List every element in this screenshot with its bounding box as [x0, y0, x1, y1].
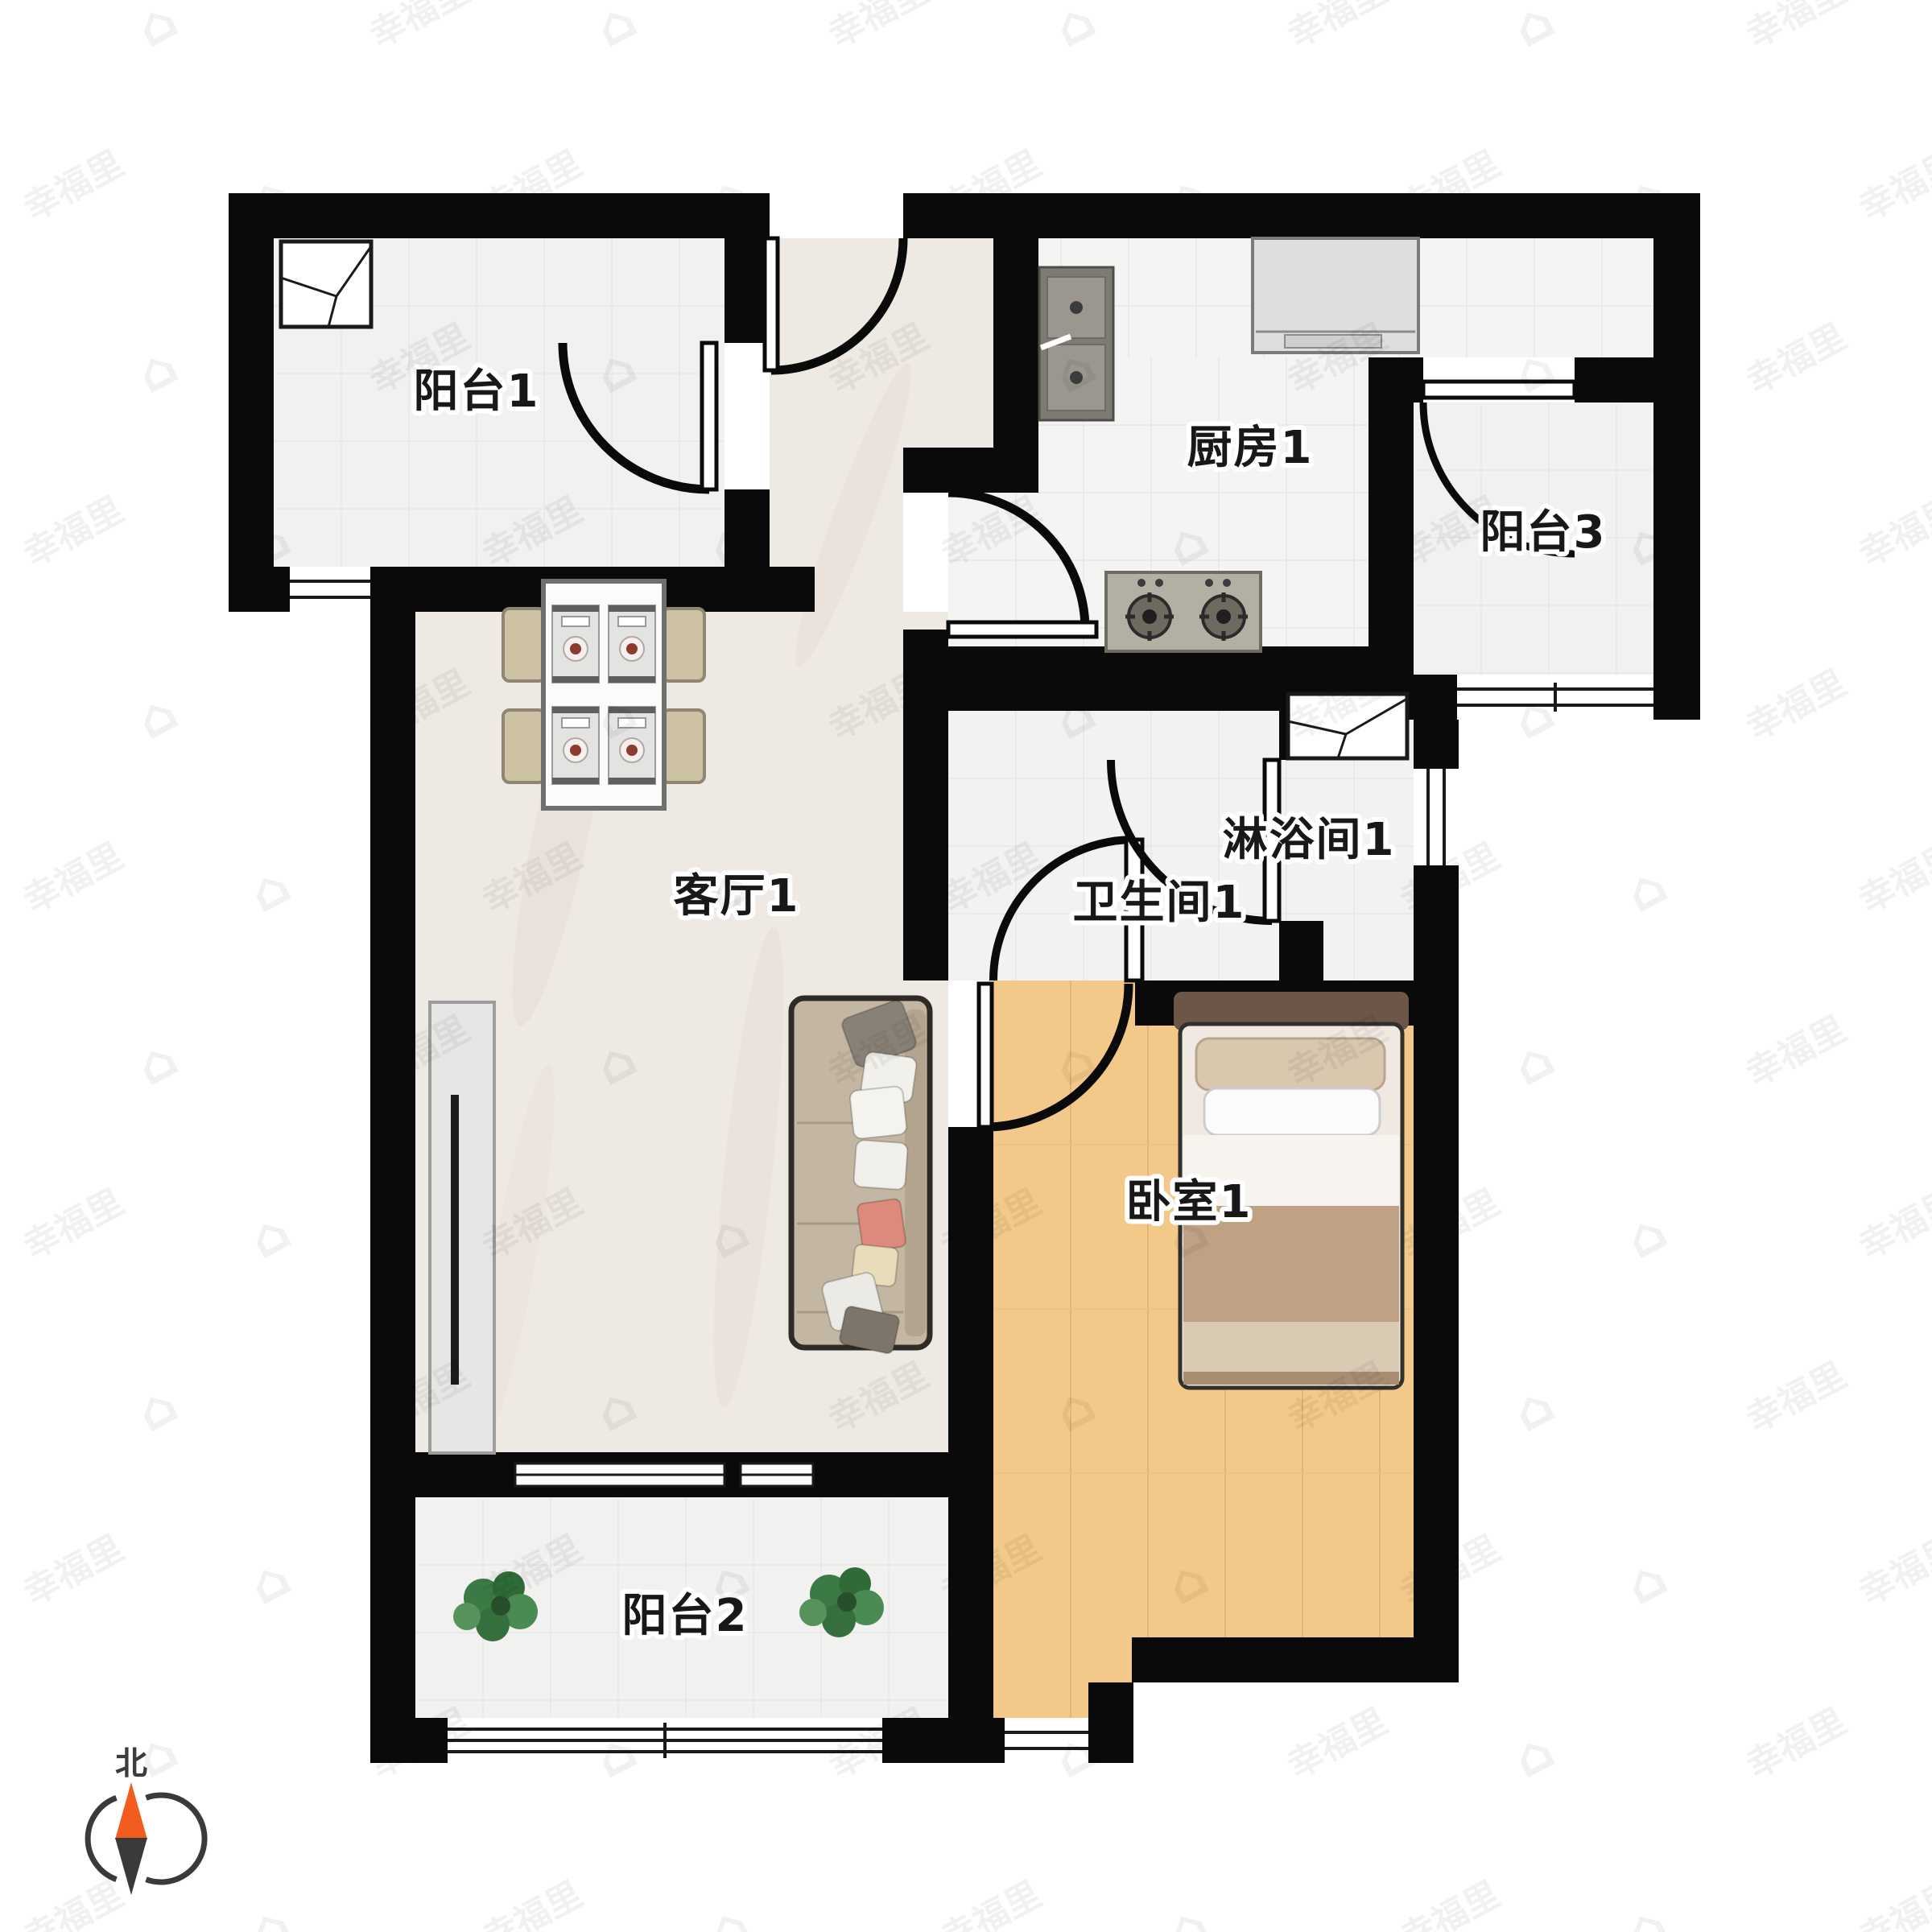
watermark-house-icon: ⌂: [1616, 1547, 1677, 1617]
watermark-house-icon: ⌂: [1616, 855, 1677, 925]
dining-chair: [503, 609, 545, 681]
window-living-balcony2-a: [515, 1463, 724, 1486]
window-balcony2-bottom: [448, 1718, 882, 1763]
watermark-text: 幸福里: [1852, 1528, 1932, 1614]
watermark-text: 幸福里: [822, 0, 935, 56]
watermark-text: 幸福里: [17, 1874, 130, 1932]
watermark-house-icon: ⌂: [1158, 1893, 1218, 1932]
compass-needle-south: [115, 1838, 147, 1895]
bed-pillow-white: [1204, 1088, 1380, 1135]
watermark-text: 幸福里: [1852, 143, 1932, 229]
watermark-text: 幸福里: [17, 1182, 130, 1268]
dining-chair: [503, 710, 545, 782]
compass-needle-north: [115, 1782, 147, 1839]
watermark-house-icon: ⌂: [240, 1201, 300, 1271]
watermark-text: 幸福里: [1740, 1355, 1852, 1441]
window-living-balcony2-b: [741, 1463, 813, 1486]
watermark-house-icon: ⌂: [240, 1893, 300, 1932]
watermark-text: 幸福里: [1740, 316, 1852, 402]
floor-plan: 阳台1 厨房1 阳台3 客厅1 淋浴间1 卫生间1 卧室1 阳台2 北 ⌂幸福里…: [0, 0, 1932, 1932]
wall-bedroom-step: [1088, 1682, 1133, 1763]
wall-top-right: [903, 193, 1700, 238]
wall-balcony3-top-left: [1368, 357, 1423, 402]
watermark-house-icon: ⌂: [1045, 0, 1105, 60]
watermark-text: 幸福里: [476, 1874, 588, 1932]
watermark-text: 幸福里: [1740, 1009, 1852, 1095]
watermark-house-icon: ⌂: [127, 336, 188, 406]
wall-balcony2-west: [370, 1452, 415, 1763]
watermark-house-icon: ⌂: [586, 0, 646, 60]
watermark-text: 幸福里: [17, 1528, 130, 1614]
watermark-text: 幸福里: [17, 143, 130, 229]
wall-balcony1-bottom-stub: [229, 567, 290, 612]
stove: [1106, 572, 1261, 651]
watermark-text: 幸福里: [17, 489, 130, 576]
watermark-text: 幸福里: [1852, 489, 1932, 576]
watermark-text: 幸福里: [1852, 836, 1932, 922]
watermark-text: 幸福里: [1852, 1874, 1932, 1932]
watermark-house-icon: ⌂: [127, 0, 188, 60]
place-setting: [609, 605, 655, 683]
watermark-text: 幸福里: [1740, 0, 1852, 56]
watermark-house-icon: ⌂: [240, 1547, 300, 1617]
watermark-text: 幸福里: [17, 836, 130, 922]
watermark-text: 幸福里: [1281, 0, 1393, 56]
window-balcony1-bottom: [290, 567, 370, 612]
label-shower: 淋浴间1: [1223, 814, 1396, 866]
watermark-text: 幸福里: [1281, 1701, 1393, 1787]
watermark-house-icon: ⌂: [127, 1374, 188, 1444]
dining-chair: [663, 710, 704, 782]
watermark-house-icon: ⌂: [1616, 1893, 1677, 1932]
floor-plan-page: 阳台1 厨房1 阳台3 客厅1 淋浴间1 卫生间1 卧室1 阳台2 北 ⌂幸福里…: [0, 0, 1932, 1932]
watermark-text: 幸福里: [1852, 1182, 1932, 1268]
corner-cabinet-balcony1: [281, 242, 371, 327]
watermark-house-icon: ⌂: [127, 682, 188, 752]
watermark-house-icon: ⌂: [1504, 1720, 1564, 1790]
watermark-house-icon: ⌂: [240, 855, 300, 925]
wall-right-exterior: [1653, 193, 1700, 720]
watermark-house-icon: ⌂: [1616, 1201, 1677, 1271]
wall-kitchen-jog: [903, 448, 1038, 493]
window-balcony3-bottom: [1457, 675, 1653, 720]
wall-kitchen-west: [993, 238, 1038, 448]
watermark-house-icon: ⌂: [1504, 0, 1564, 60]
coral-pillow: [857, 1199, 906, 1253]
wall-bathroom-west: [903, 711, 948, 980]
watermark-house-icon: ⌂: [1504, 1374, 1564, 1444]
place-setting: [552, 605, 599, 683]
watermark-text: 幸福里: [935, 1874, 1047, 1932]
label-bathroom: 卫生间1: [1073, 877, 1246, 929]
dining-chair: [663, 609, 704, 681]
place-setting: [552, 707, 599, 784]
watermark-text: 幸福里: [1740, 663, 1852, 749]
watermark-text: 幸福里: [1740, 1701, 1852, 1787]
watermark-text: 幸福里: [1393, 1874, 1506, 1932]
fridge: [1253, 238, 1418, 353]
wall-bedroom-south-right: [1132, 1637, 1459, 1682]
tv: [451, 1095, 459, 1385]
watermark-house-icon: ⌂: [127, 1028, 188, 1098]
watermark-house-icon: ⌂: [1504, 1028, 1564, 1098]
watermark-text: 幸福里: [363, 0, 476, 56]
label-kitchen: 厨房1: [1187, 422, 1314, 474]
watermark-house-icon: ⌂: [699, 1893, 759, 1932]
window-shower-east: [1414, 769, 1459, 865]
wall-bedroom-west: [948, 1127, 993, 1497]
